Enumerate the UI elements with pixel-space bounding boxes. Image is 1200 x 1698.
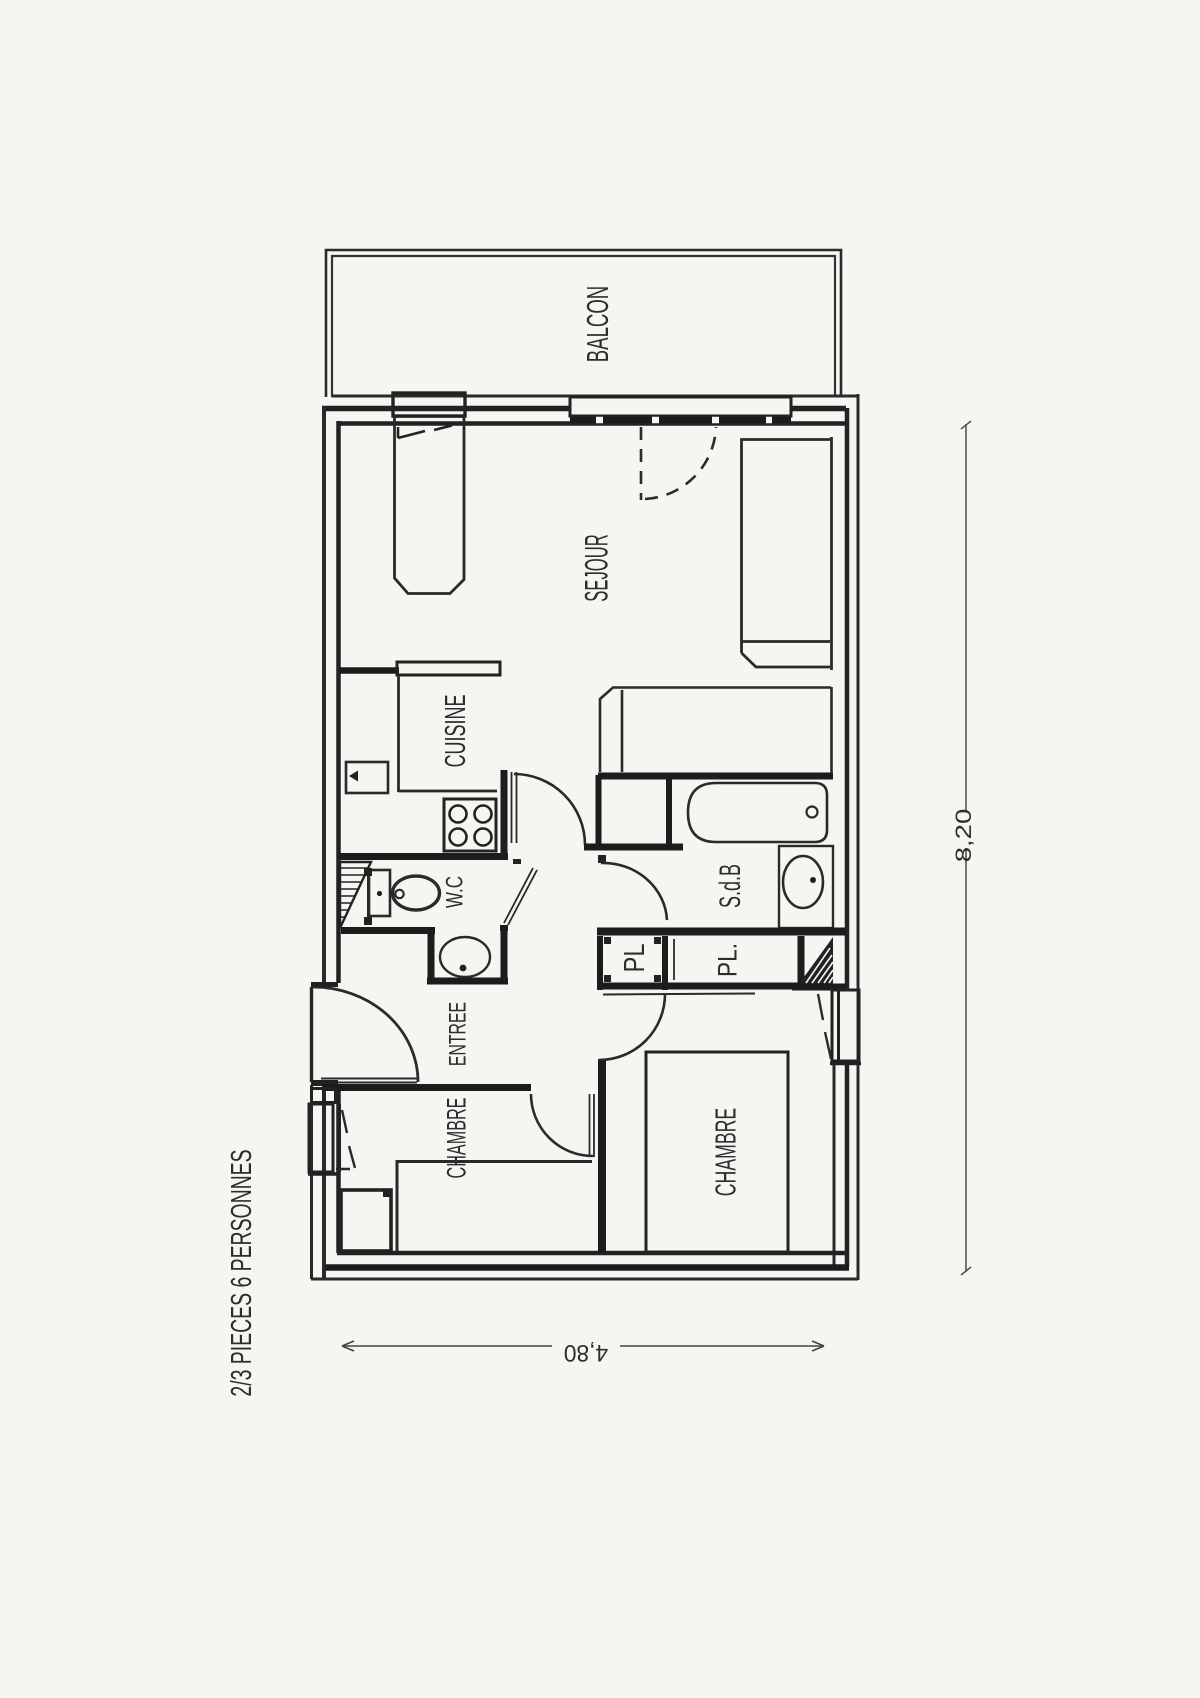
svg-text:PL: PL [618, 943, 651, 972]
svg-text:PL.: PL. [713, 943, 743, 977]
svg-text:SEJOUR: SEJOUR [580, 534, 615, 601]
svg-text:S.d.B: S.d.B [715, 864, 748, 908]
svg-text:CHAMBRE: CHAMBRE [710, 1108, 743, 1196]
svg-text:CHAMBRE: CHAMBRE [441, 1098, 471, 1179]
svg-text:BALCON: BALCON [581, 286, 615, 362]
svg-text:W.C: W.C [442, 876, 469, 908]
svg-text:2/3 PIECES 6 PERSONNES: 2/3 PIECES 6 PERSONNES [226, 1149, 258, 1396]
svg-text:ENTREE: ENTREE [445, 1002, 471, 1066]
svg-text:CUISINE: CUISINE [440, 695, 472, 768]
svg-text:4,80: 4,80 [564, 1340, 608, 1367]
svg-text:8,20: 8,20 [952, 809, 977, 863]
